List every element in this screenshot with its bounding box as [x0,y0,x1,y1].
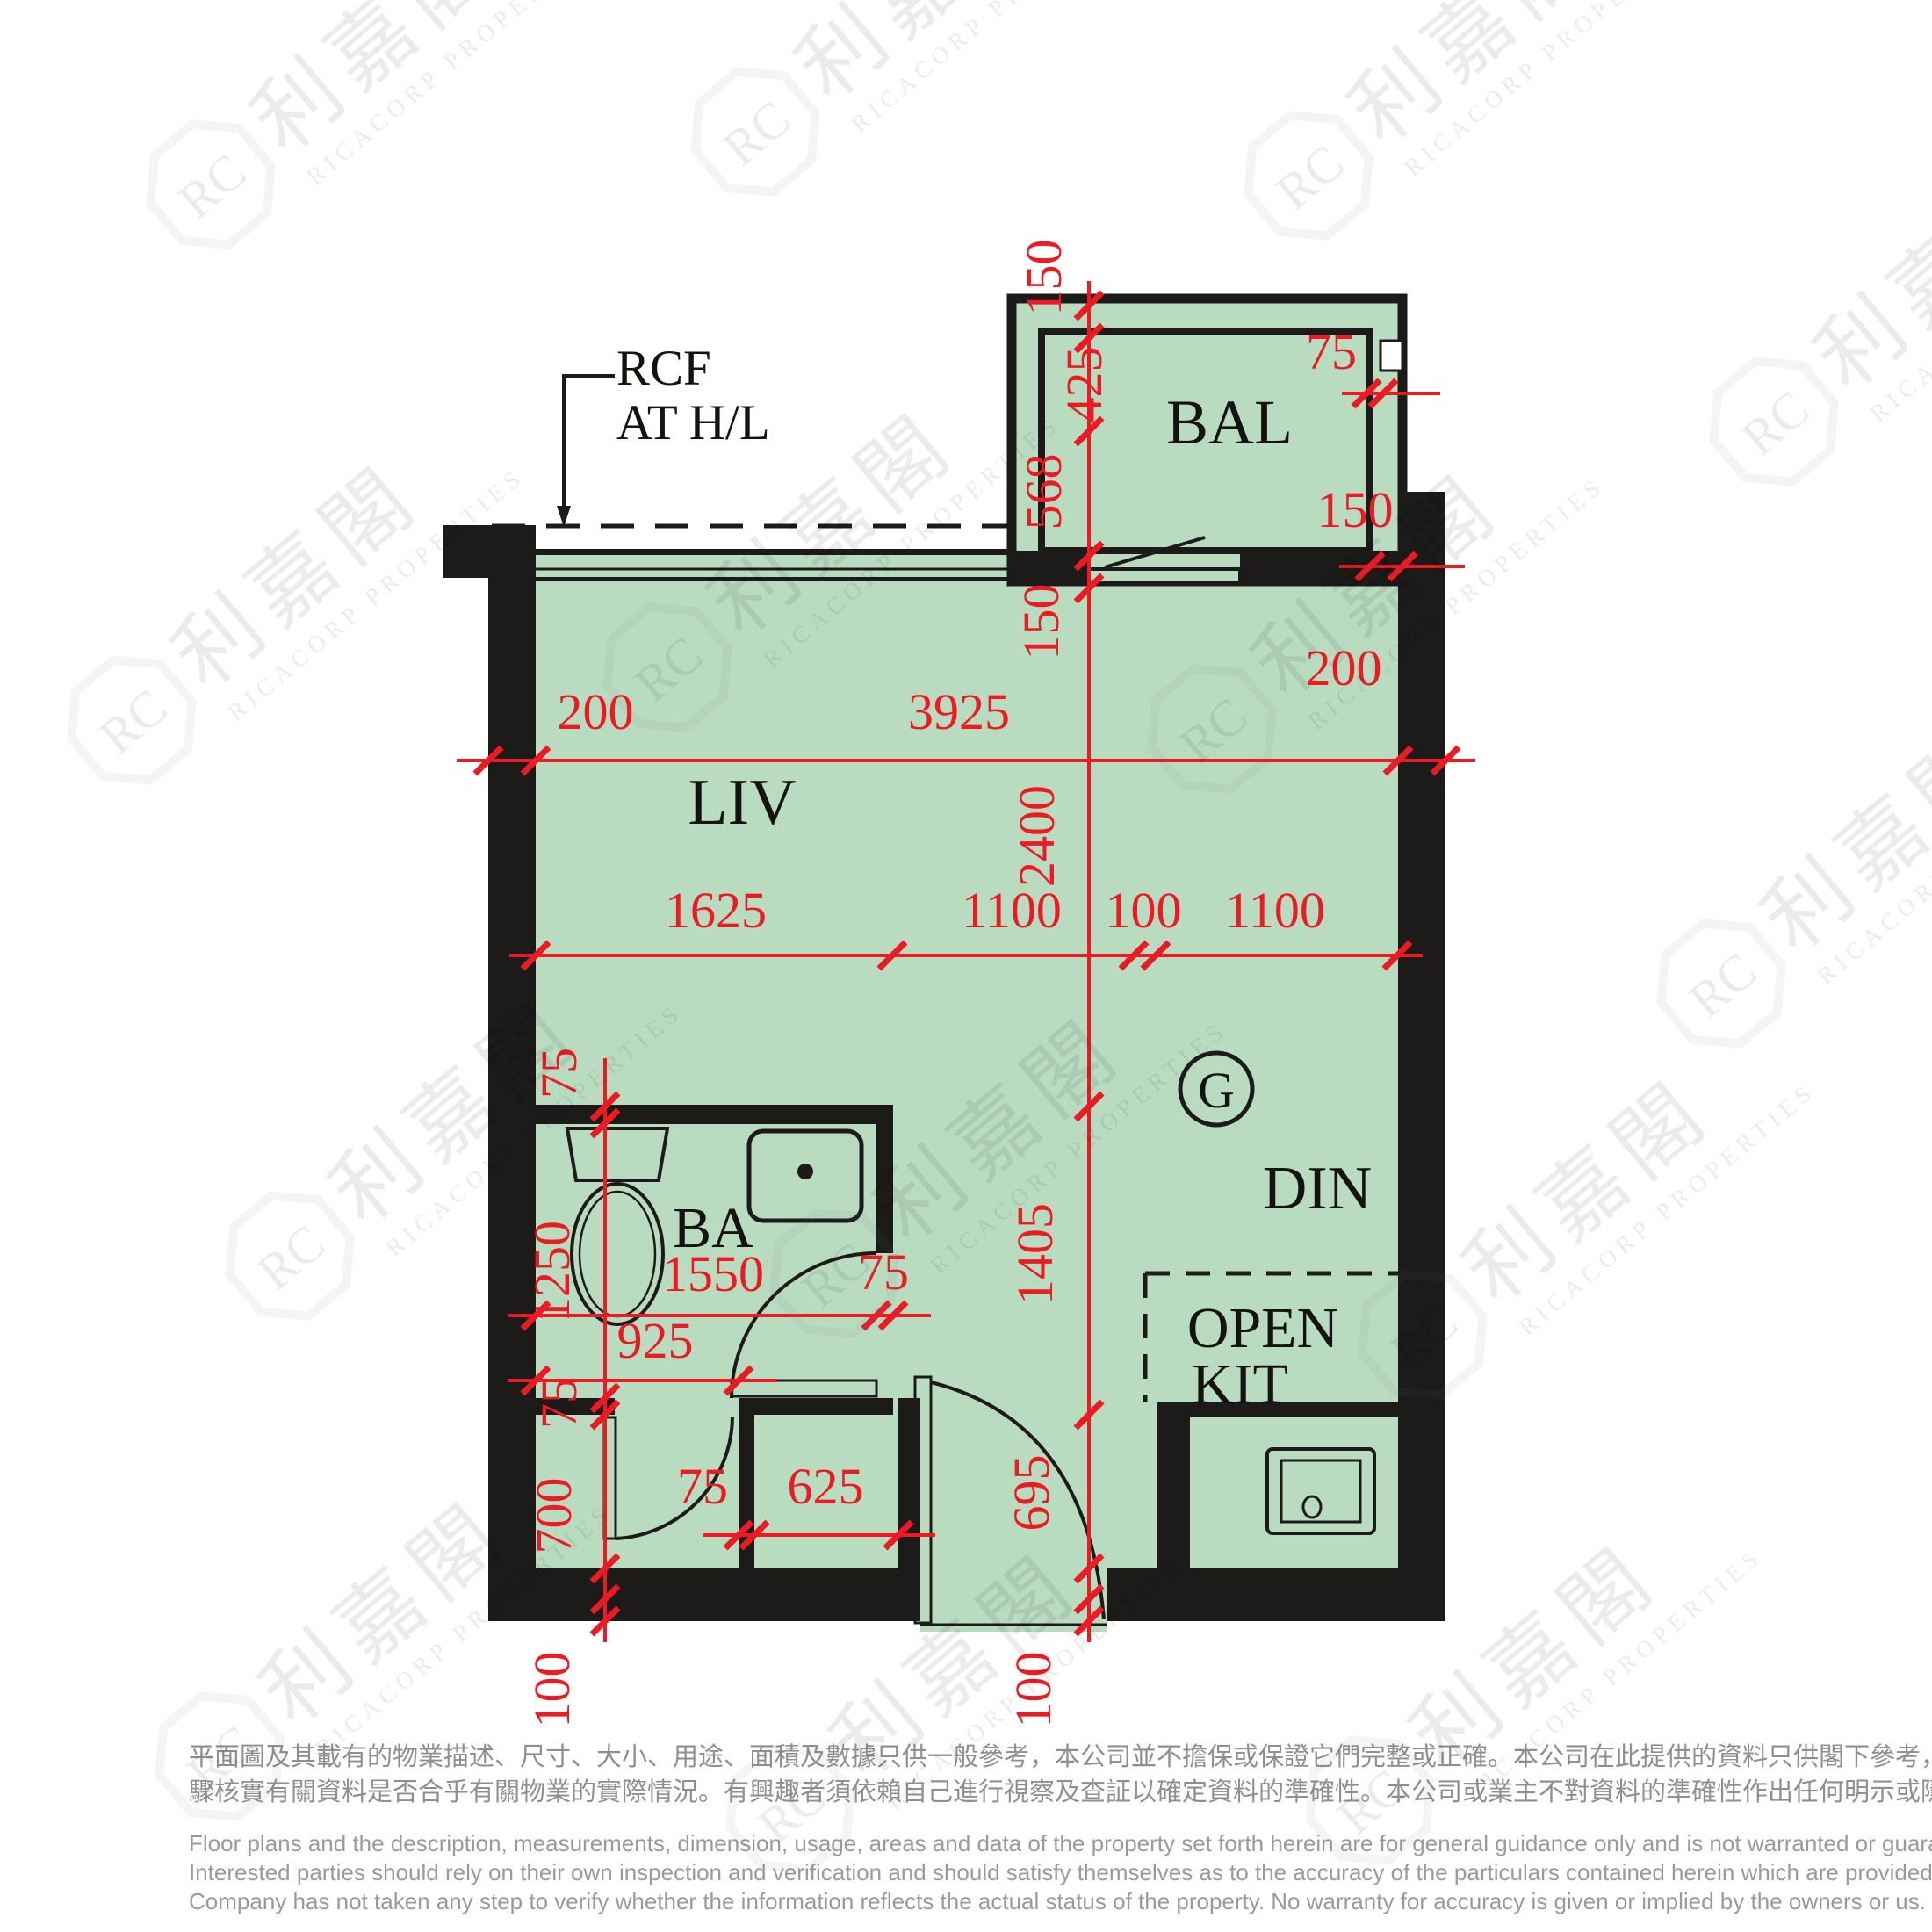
wall-corridor [898,1398,920,1621]
dim-100-bottom-left: 100 [523,1652,580,1728]
dim-1625: 1625 [665,882,767,939]
disclaimer: 平面圖及其載有的物業描述、尺寸、大小、用途、面積及數據只供一般參考，本公司並不擔… [189,1742,1932,1914]
room-label-openkit-2: KIT [1192,1352,1288,1417]
dim-bal-right-75: 75 [1306,323,1357,380]
dim-bal-left-150: 150 [1015,240,1072,316]
disclaimer-en-2: Interested parties should rely on their … [189,1859,1932,1885]
dim-part-75: 75 [677,1458,728,1515]
rcf-label-line2: AT H/L [616,395,770,451]
dim-width-3925: 3925 [908,683,1010,740]
balcony-parapet-notch [1381,341,1402,371]
rcf-arrowhead [557,506,571,527]
wall-bottom-left [488,1568,920,1621]
rcf-arrow-line [564,376,615,508]
room-label-living: LIV [688,767,796,839]
floor-plan-page: RC 利嘉閣 RICACORP PROPERTIES [0,0,1932,1932]
dim-bath-1550: 1550 [662,1245,764,1302]
dim-1100a: 1100 [962,882,1062,939]
dim-bath-1250: 1250 [523,1221,580,1323]
floor-plan-canvas: RC 利嘉閣 RICACORP PROPERTIES [0,0,1932,1932]
wall-kitchen-left [1157,1402,1190,1568]
room-label-openkit-1: OPEN [1187,1296,1338,1360]
dim-925: 925 [617,1312,694,1369]
dim-100a: 100 [1106,882,1182,939]
gas-meter-label: G [1198,1062,1235,1119]
disclaimer-en-3: Company has not taken any step to verify… [189,1888,1926,1914]
dim-1100b: 1100 [1225,882,1325,939]
disclaimer-zh-2: 驟核實有關資料是否合乎有關物業的實際情況。有興趣者須依賴自己進行視察及查証以確定… [189,1777,1932,1806]
room-label-balcony: BAL [1166,387,1293,458]
dim-bal-425: 425 [1056,347,1113,423]
disclaimer-en-1: Floor plans and the description, measure… [189,1830,1932,1856]
dim-bath-75-bottom: 75 [530,1378,588,1429]
basin-drain [797,1164,813,1179]
dim-window-150: 150 [1013,584,1070,660]
dim-liv-2400: 2400 [1008,785,1065,887]
dim-1405: 1405 [1006,1203,1063,1305]
dim-695: 695 [1003,1455,1060,1532]
toilet-bowl [572,1184,663,1324]
toilet-cistern [567,1128,667,1180]
disclaimer-zh-1: 平面圖及其載有的物業描述、尺寸、大小、用途、面積及數據只供一般參考，本公司並不擔… [189,1742,1932,1771]
room-label-dining: DIN [1263,1155,1372,1222]
rcf-label-line1: RCF [616,341,711,396]
wall-bathroom-top [536,1105,893,1124]
dim-625: 625 [788,1458,864,1515]
rcf-annotation: RCF AT H/L [557,341,770,527]
dim-left-200: 200 [558,683,634,740]
wall-bathroom-bottom-b [739,1398,893,1415]
balcony-sliding-door [1089,569,1240,583]
dim-bal-568: 568 [1015,454,1072,530]
